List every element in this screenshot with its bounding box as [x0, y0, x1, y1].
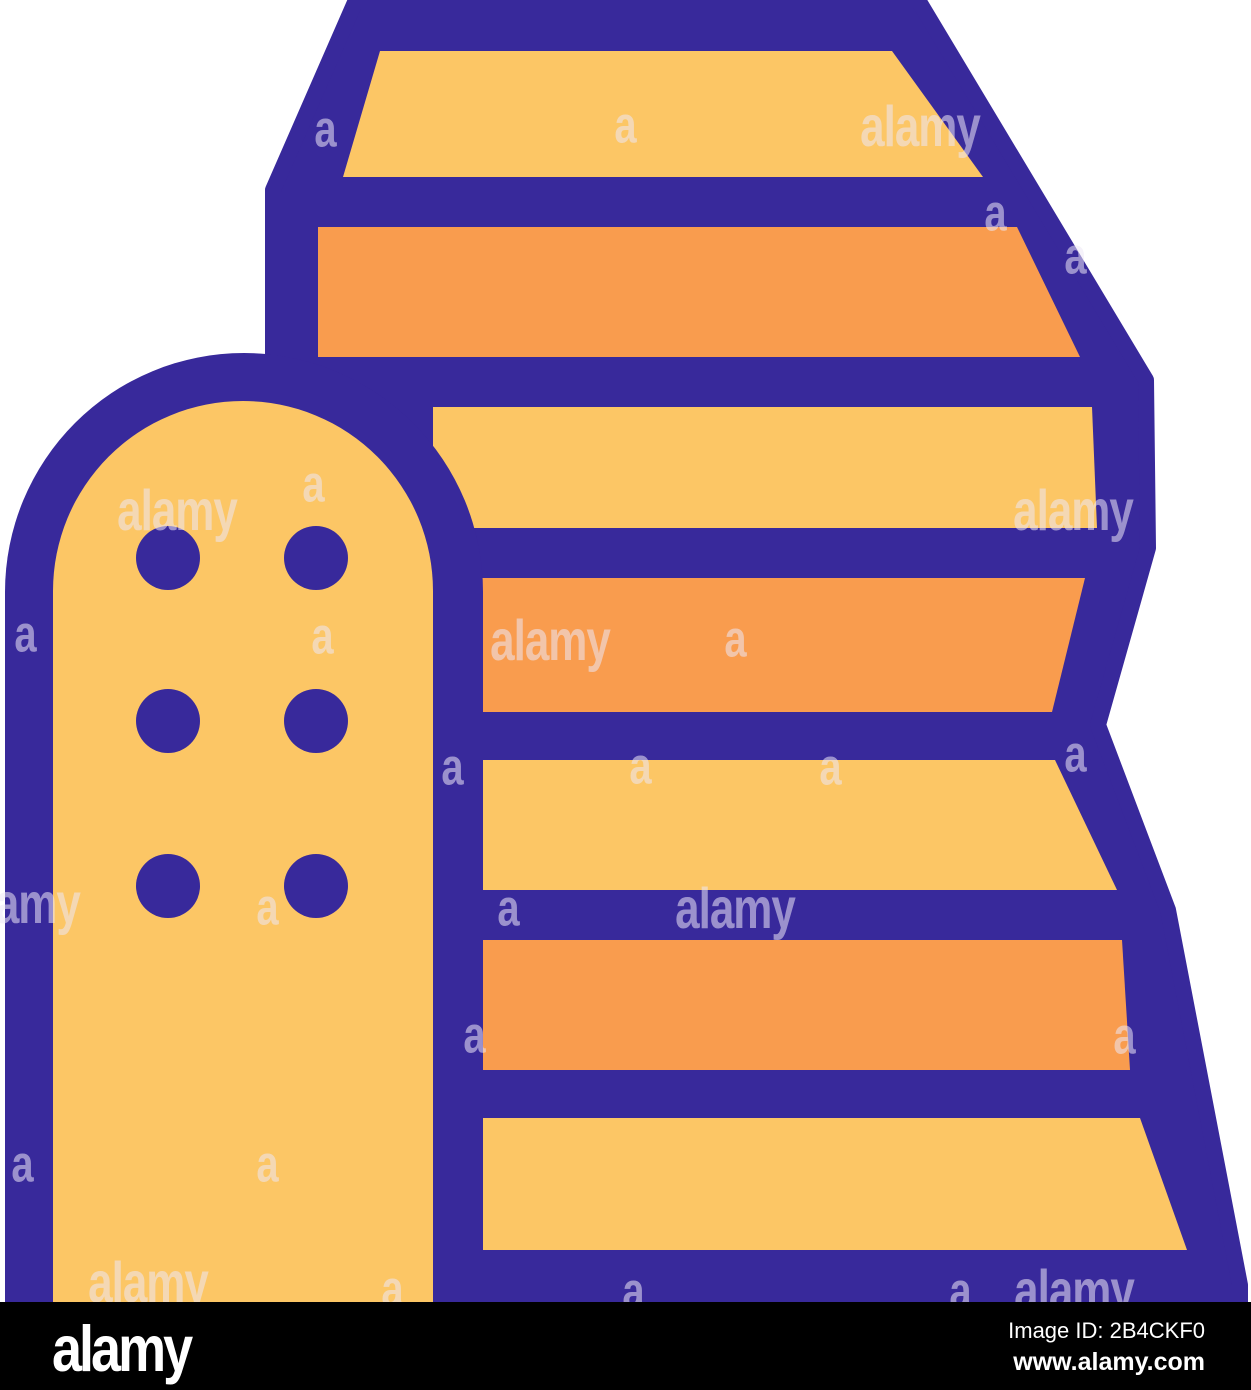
tower-window-dot: [284, 526, 348, 590]
tower-building-icon: [0, 0, 1251, 1390]
tower-window-dot: [136, 526, 200, 590]
alamy-logo: alamy: [52, 1312, 190, 1386]
footer-bar: alamy Image ID: 2B4CKF0 www.alamy.com: [0, 1302, 1251, 1390]
tower-window-dot: [136, 854, 200, 918]
tower-window-dot: [284, 854, 348, 918]
website-url: www.alamy.com: [1013, 1348, 1205, 1377]
tower-window-dot: [284, 689, 348, 753]
tower-window-dot: [136, 689, 200, 753]
tower-body: [53, 401, 433, 1302]
stock-photo-canvas: alamyalamyalamyalamyalamyalamyalamyalamy…: [0, 0, 1251, 1390]
image-id-label: Image ID: 2B4CKF0: [1008, 1318, 1205, 1344]
